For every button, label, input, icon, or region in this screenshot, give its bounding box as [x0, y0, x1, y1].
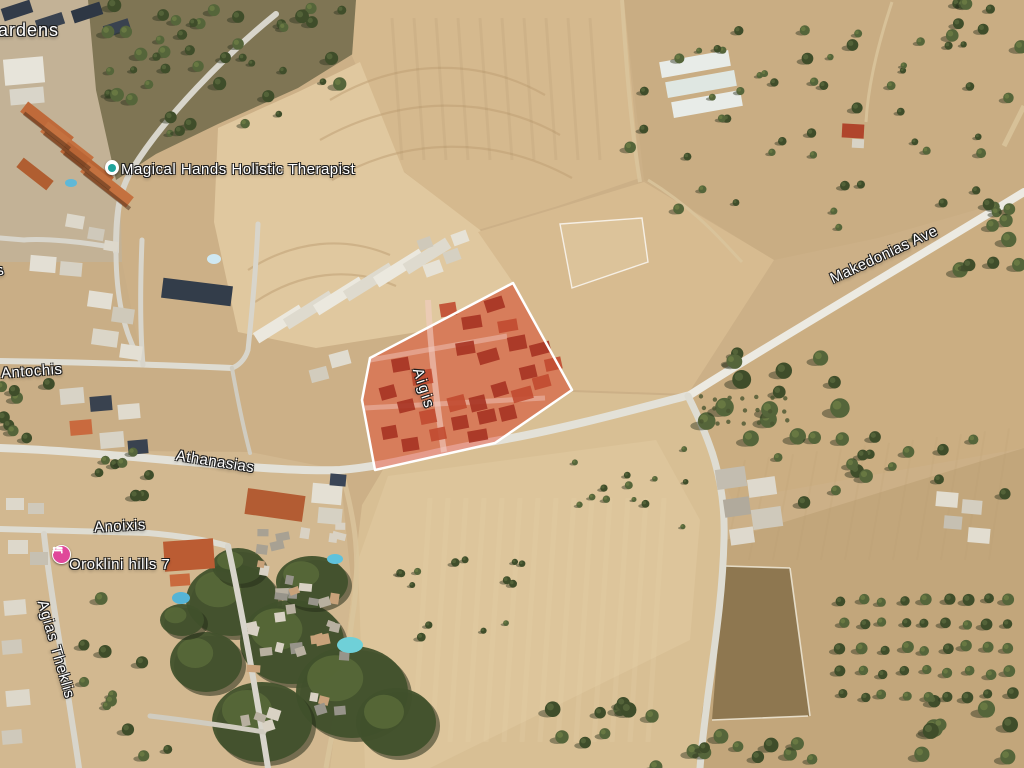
- satellite-imagery: [0, 0, 1024, 768]
- poi-marker-magical-hands[interactable]: [105, 160, 119, 175]
- satellite-map[interactable]: ardens Antochis Athanasias Aigis Makedon…: [0, 0, 1024, 768]
- lodging-marker-icon: [52, 545, 71, 564]
- poi-marker-oroklini-hills[interactable]: [52, 545, 71, 564]
- spa-marker-icon: [105, 160, 119, 175]
